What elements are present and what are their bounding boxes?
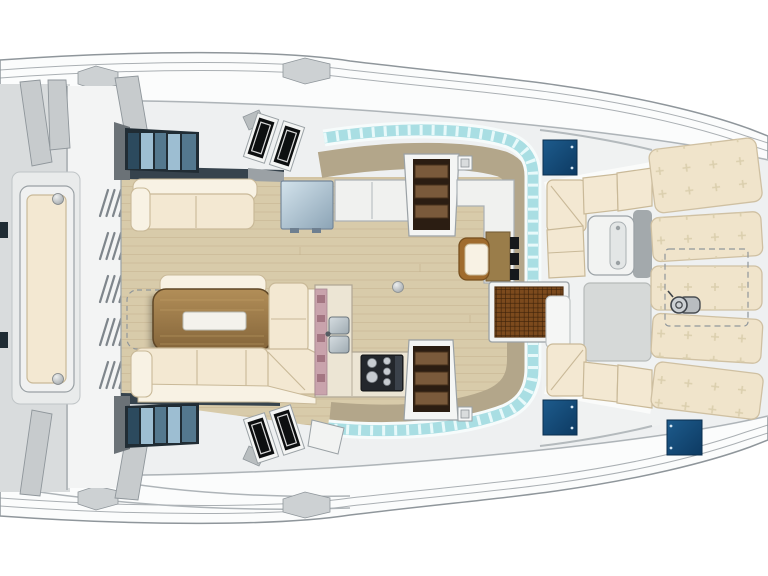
- u-sofa-armrest: [131, 351, 152, 397]
- bench-cushion: [583, 174, 618, 214]
- stair-step: [415, 165, 448, 178]
- deck-hatch-starboard: [543, 400, 577, 435]
- port-hull-stairs: [404, 154, 459, 236]
- pedestal-bolt: [616, 261, 620, 265]
- sofa-seat: [136, 194, 254, 229]
- yacht-deck-plan: [0, 0, 768, 576]
- stair-step: [415, 392, 448, 405]
- sunpad-3: [651, 266, 762, 310]
- bench-cushion: [617, 168, 652, 211]
- stair-step: [415, 185, 448, 198]
- bench-cushion: [583, 362, 618, 402]
- bench-seat-cushion: [27, 195, 66, 383]
- stair-step: [415, 372, 448, 385]
- refrigerator-foot-1: [290, 228, 299, 233]
- dining-area: [127, 275, 318, 404]
- bench-knob-bottom: [53, 374, 64, 385]
- footwell-shadow: [633, 210, 652, 278]
- saloon-sofa: [131, 179, 257, 231]
- instrument-panel: [510, 237, 519, 280]
- hull-window-sliver-2: [0, 332, 8, 348]
- side-window-port: [125, 128, 199, 173]
- foredeck-sunpads: [648, 137, 764, 420]
- deck-hatch-bow: [667, 420, 702, 455]
- deck-plan-canvas: [0, 0, 768, 576]
- faucet: [325, 331, 330, 336]
- floor-hatch-panel: [584, 283, 651, 361]
- deck-hatch-port: [543, 140, 577, 175]
- table-inlay: [183, 312, 246, 330]
- stair-step: [415, 352, 448, 365]
- pedestal-bolt: [616, 226, 620, 230]
- table-leg-socket: [393, 282, 404, 293]
- saloon: [114, 110, 533, 466]
- bench-knob-top: [53, 194, 64, 205]
- refrigerator: [281, 181, 333, 229]
- sunpad-1: [648, 137, 763, 214]
- bench-cushion: [617, 365, 652, 408]
- stove: [361, 355, 403, 391]
- sideboard: [335, 180, 411, 221]
- hull-window-sliver-1: [0, 222, 8, 238]
- navigation-seat-cushion: [465, 244, 488, 275]
- stair-step: [415, 205, 448, 218]
- starboard-hull-stairs: [404, 340, 458, 420]
- u-sofa-right-seat: [269, 283, 308, 353]
- cockpit-table: [588, 216, 634, 275]
- refrigerator-foot-2: [312, 228, 321, 233]
- deck-light-starboard: [458, 407, 472, 421]
- bench-module: [546, 296, 570, 348]
- deck-light-port: [458, 156, 472, 170]
- sunpad-4: [651, 313, 763, 364]
- side-window-starboard: [125, 403, 199, 448]
- sofa-armrest: [131, 188, 150, 231]
- sunpad-2: [651, 211, 763, 262]
